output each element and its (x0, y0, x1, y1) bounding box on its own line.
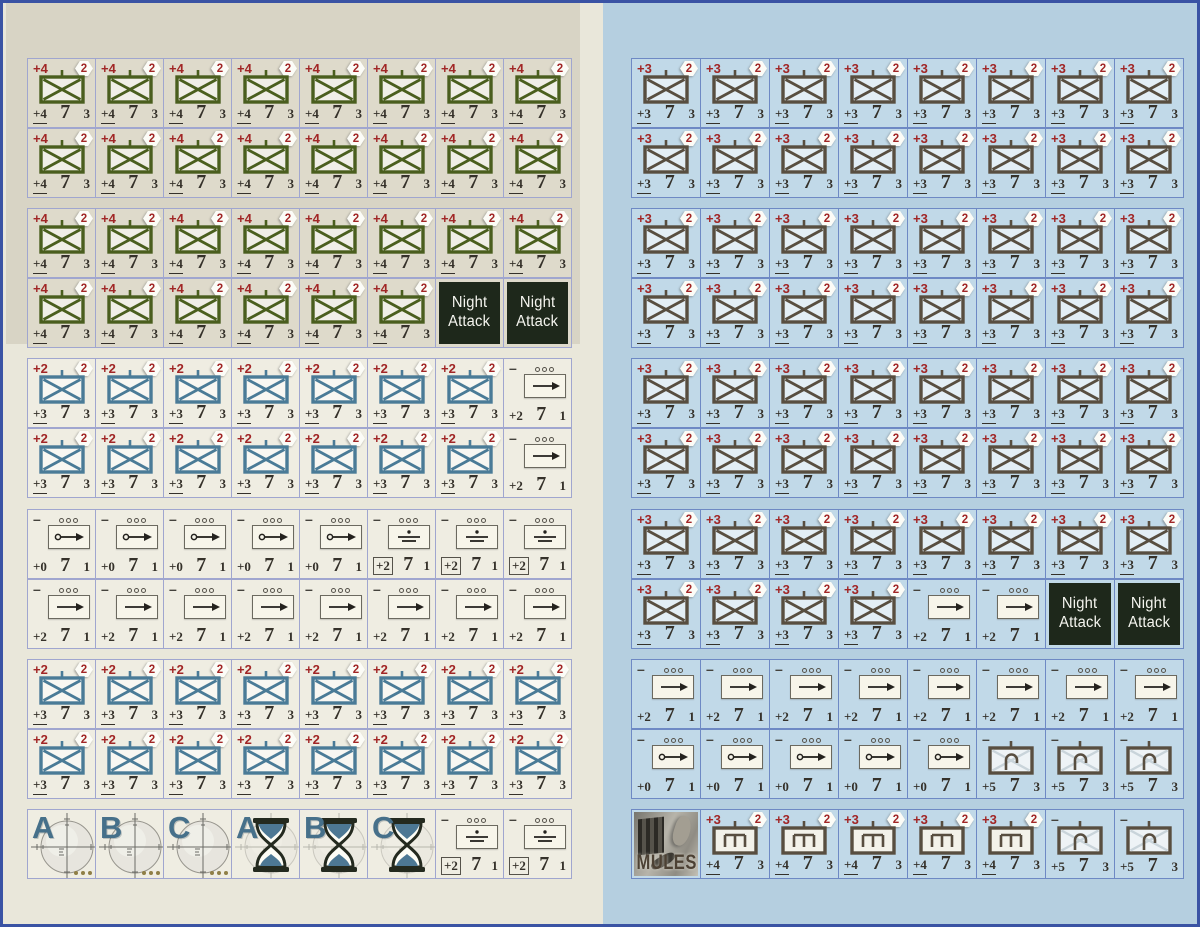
counter-mountain-brown[interactable]: – +5 7 3 (1114, 729, 1184, 799)
counter-values: +3 7 3 (775, 173, 833, 194)
infantry-symbol-icon (310, 139, 358, 175)
infantry-symbol-icon (446, 139, 494, 175)
counter-infantry-blue[interactable]: +2 2 +3 7 3 (27, 428, 96, 498)
counter-supply-column[interactable]: – +2 7 1 (907, 579, 977, 649)
counter-infantry-brown[interactable]: +3 2 +3 7 3 (769, 428, 839, 498)
right-value: 3 (826, 406, 833, 422)
right-value: 1 (287, 629, 294, 645)
counter-machinegun-brown[interactable]: +3 2 +4 7 3 (769, 809, 839, 879)
right-value: 3 (964, 106, 971, 122)
counter-timer-c[interactable]: C (367, 809, 436, 879)
counter-night-attack[interactable]: NightAttack (1114, 579, 1184, 649)
counter-infantry-brown[interactable]: +3 2 +3 7 3 (700, 579, 770, 649)
counter-infantry-green[interactable]: +4 2 +4 7 3 (299, 208, 368, 278)
counter-infantry-blue[interactable]: +2 2 +3 7 3 (95, 659, 164, 729)
center-value: 7 (734, 706, 744, 724)
center-value: 7 (196, 473, 206, 491)
counter-infantry-blue[interactable]: +2 2 +3 7 3 (367, 428, 436, 498)
counter-infantry-green[interactable]: +4 2 +4 7 3 (95, 208, 164, 278)
counter-infantry-green[interactable]: +4 2 +4 7 3 (95, 128, 164, 198)
left-value: +3 (913, 256, 927, 274)
counter-infantry-green[interactable]: +4 2 +4 7 3 (163, 58, 232, 128)
left-value: +4 (101, 176, 115, 194)
counter-supply-dump[interactable]: – +2 7 1 (435, 509, 504, 579)
counter-infantry-brown[interactable]: +3 2 +3 7 3 (631, 509, 701, 579)
counter-values: +4 7 3 (101, 323, 158, 344)
counter-supply-column[interactable]: – +2 7 1 (976, 659, 1046, 729)
counter-wagon-column[interactable]: – +0 7 1 (838, 729, 908, 799)
counter-infantry-blue[interactable]: +2 2 +3 7 3 (435, 659, 504, 729)
counter-infantry-green[interactable]: +4 2 +4 7 3 (27, 58, 96, 128)
column-box (790, 745, 832, 769)
counter-infantry-brown[interactable]: +3 2 +3 7 3 (838, 128, 908, 198)
counter-infantry-brown[interactable]: +3 2 +3 7 3 (631, 208, 701, 278)
counter-supply-dump[interactable]: – +2 7 1 (435, 809, 504, 879)
counter-infantry-brown[interactable]: +3 2 +3 7 3 (907, 58, 977, 128)
counter-infantry-blue[interactable]: +2 2 +3 7 3 (27, 729, 96, 799)
counter-values: +4 7 3 (33, 173, 90, 194)
counter-supply-dump[interactable]: – +2 7 1 (367, 509, 436, 579)
counter-infantry-green[interactable]: +4 2 +4 7 3 (95, 58, 164, 128)
counter-wagon-column[interactable]: – +0 7 1 (231, 509, 300, 579)
counter-infantry-blue[interactable]: +2 2 +3 7 3 (367, 659, 436, 729)
counter-infantry-brown[interactable]: +3 2 +3 7 3 (1045, 208, 1115, 278)
counter-infantry-brown[interactable]: +3 2 +3 7 3 (700, 358, 770, 428)
counter-supply-column[interactable]: – +2 7 1 (769, 659, 839, 729)
counter-mountain-brown[interactable]: – +5 7 3 (1114, 809, 1184, 879)
center-value: 7 (1148, 554, 1158, 572)
counter-infantry-blue[interactable]: +2 2 +3 7 3 (27, 358, 96, 428)
counter-infantry-blue[interactable]: +2 2 +3 7 3 (299, 428, 368, 498)
counter-values: +0 7 1 (237, 556, 294, 575)
counter-infantry-green[interactable]: +4 2 +4 7 3 (27, 128, 96, 198)
counter-supply-column[interactable]: – +2 7 1 (907, 659, 977, 729)
wheels-icon (940, 738, 959, 743)
right-value: 3 (287, 256, 294, 272)
center-value: 7 (1148, 253, 1158, 271)
counter-infantry-green[interactable]: +4 2 +4 7 3 (299, 278, 368, 348)
counter-infantry-brown[interactable]: +3 2 +3 7 3 (838, 208, 908, 278)
counter-infantry-green[interactable]: +4 2 +4 7 3 (163, 208, 232, 278)
right-value: 3 (1102, 256, 1109, 272)
counter-infantry-brown[interactable]: +3 2 +3 7 3 (1114, 428, 1184, 498)
counter-infantry-brown[interactable]: +3 2 +3 7 3 (769, 358, 839, 428)
left-value: +3 (441, 707, 455, 725)
left-value: +2 (844, 709, 858, 725)
counter-wagon-column[interactable]: – +0 7 1 (299, 509, 368, 579)
infantry-symbol-icon (514, 139, 562, 175)
counter-supply-column[interactable]: – +2 7 1 (631, 659, 701, 729)
left-value: +2 (237, 629, 251, 645)
counter-artillery-target-a[interactable]: A (27, 809, 96, 879)
counter-values: +3 7 3 (775, 473, 833, 494)
infantry-symbol-icon (987, 520, 1035, 556)
counter-supply-column[interactable]: – +2 7 1 (231, 579, 300, 649)
counter-infantry-blue[interactable]: +2 2 +3 7 3 (435, 428, 504, 498)
counter-wagon-column[interactable]: – +0 7 1 (95, 509, 164, 579)
column-box (184, 525, 226, 549)
counter-row: +3 2 +3 7 3+3 2 +3 7 3+3 2 +3 7 3+3 2 +3… (631, 428, 1184, 498)
right-value: 3 (688, 557, 695, 573)
counter-infantry-blue[interactable]: +2 2 +3 7 3 (231, 729, 300, 799)
left-value: +3 (913, 326, 927, 344)
right-value: 3 (1171, 557, 1178, 573)
right-value: 1 (1033, 709, 1040, 725)
counter-supply-dump[interactable]: – +2 7 1 (503, 509, 572, 579)
counter-infantry-brown[interactable]: +3 2 +3 7 3 (838, 509, 908, 579)
center-value: 7 (1079, 776, 1089, 794)
center-value: 7 (1079, 103, 1089, 121)
counter-wagon-column[interactable]: – +0 7 1 (700, 729, 770, 799)
counter-infantry-brown[interactable]: +3 2 +3 7 3 (1045, 58, 1115, 128)
right-value: 3 (423, 406, 430, 422)
counter-infantry-blue[interactable]: +2 2 +3 7 3 (95, 428, 164, 498)
counter-supply-column[interactable]: – +2 7 1 (95, 579, 164, 649)
counter-infantry-green[interactable]: +4 2 +4 7 3 (503, 128, 572, 198)
infantry-symbol-icon (642, 590, 690, 626)
infantry-symbol-icon (38, 439, 86, 475)
counter-infantry-blue[interactable]: +2 2 +3 7 3 (231, 358, 300, 428)
wheels-icon (535, 367, 554, 372)
counter-machinegun-brown[interactable]: +3 2 +4 7 3 (907, 809, 977, 879)
left-value: +4 (441, 106, 455, 124)
counter-infantry-blue[interactable]: +2 2 +3 7 3 (435, 729, 504, 799)
right-value: 1 (559, 858, 566, 874)
right-value: 3 (491, 476, 498, 492)
counter-supply-column[interactable]: – +2 7 1 (27, 579, 96, 649)
counter-infantry-green[interactable]: +4 2 +4 7 3 (367, 128, 436, 198)
counter-infantry-brown[interactable]: +3 2 +3 7 3 (907, 278, 977, 348)
counter-infantry-brown[interactable]: +3 2 +3 7 3 (907, 208, 977, 278)
center-value: 7 (332, 323, 342, 341)
center-value: 7 (941, 473, 951, 491)
column-symbol (368, 588, 435, 619)
column-symbol (1046, 668, 1114, 699)
center-value: 7 (128, 626, 138, 644)
counter-infantry-brown[interactable]: +3 2 +3 7 3 (1045, 509, 1115, 579)
counter-infantry-brown[interactable]: +3 2 +3 7 3 (907, 509, 977, 579)
infantry-symbol-icon (446, 740, 494, 776)
counter-infantry-green[interactable]: +4 2 +4 7 3 (299, 128, 368, 198)
counter-infantry-brown[interactable]: +3 2 +3 7 3 (769, 278, 839, 348)
counter-wagon-column[interactable]: – +0 7 1 (163, 509, 232, 579)
counter-values: +3 7 3 (775, 103, 833, 124)
counter-infantry-brown[interactable]: +3 2 +3 7 3 (700, 208, 770, 278)
left-value: +2 (509, 629, 523, 645)
center-value: 7 (803, 776, 813, 794)
counter-night-attack[interactable]: NightAttack (1045, 579, 1115, 649)
counter-infantry-green[interactable]: +4 2 +4 7 3 (231, 278, 300, 348)
counter-infantry-brown[interactable]: +3 2 +3 7 3 (700, 509, 770, 579)
counter-wagon-column[interactable]: – +0 7 1 (769, 729, 839, 799)
left-value: +5 (1051, 779, 1065, 795)
counter-infantry-brown[interactable]: +3 2 +3 7 3 (976, 509, 1046, 579)
left-value: +3 (775, 627, 789, 645)
infantry-symbol-icon (918, 369, 966, 405)
counter-infantry-brown[interactable]: +3 2 +3 7 3 (1045, 278, 1115, 348)
counter-row: +4 2 +4 7 3+4 2 +4 7 3+4 2 +4 7 3+4 2 +4… (27, 208, 572, 278)
counter-infantry-green[interactable]: +4 2 +4 7 3 (231, 58, 300, 128)
counter-supply-column[interactable]: – +2 7 1 (503, 428, 572, 498)
infantry-symbol-icon (711, 369, 759, 405)
counter-infantry-green[interactable]: +4 2 +4 7 3 (367, 58, 436, 128)
counter-infantry-brown[interactable]: +3 2 +3 7 3 (1114, 208, 1184, 278)
counter-values: +3 7 3 (637, 173, 695, 194)
infantry-symbol-icon (987, 289, 1035, 325)
counter-infantry-brown[interactable]: +3 2 +3 7 3 (631, 579, 701, 649)
counter-infantry-green[interactable]: +4 2 +4 7 3 (367, 208, 436, 278)
supply-dump-icon (529, 529, 561, 545)
column-box (524, 525, 566, 549)
column-symbol (232, 588, 299, 619)
counter-infantry-green[interactable]: +4 2 +4 7 3 (163, 278, 232, 348)
night-attack-label: NightAttack (1118, 583, 1180, 645)
counter-infantry-green[interactable]: +4 2 +4 7 3 (435, 208, 504, 278)
center-value: 7 (1010, 173, 1020, 191)
counter-infantry-green[interactable]: +4 2 +4 7 3 (503, 208, 572, 278)
counter-wagon-column[interactable]: – +0 7 1 (27, 509, 96, 579)
center-value: 7 (60, 556, 70, 574)
center-value: 7 (196, 253, 206, 271)
counter-infantry-brown[interactable]: +3 2 +3 7 3 (838, 278, 908, 348)
column-symbol (701, 668, 769, 699)
counter-machinegun-brown[interactable]: +3 2 +4 7 3 (976, 809, 1046, 879)
counter-infantry-green[interactable]: +4 2 +4 7 3 (231, 128, 300, 198)
center-value: 7 (128, 556, 138, 574)
counter-row: +2 2 +3 7 3+2 2 +3 7 3+2 2 +3 7 3+2 2 +3… (27, 659, 572, 729)
counter-infantry-brown[interactable]: +3 2 +3 7 3 (769, 128, 839, 198)
right-value: 3 (688, 627, 695, 643)
counter-infantry-brown[interactable]: +3 2 +3 7 3 (700, 58, 770, 128)
column-symbol (164, 588, 231, 619)
counter-infantry-brown[interactable]: +3 2 +3 7 3 (976, 208, 1046, 278)
wheels-icon (59, 588, 78, 593)
right-value: 3 (757, 557, 764, 573)
counter-mountain-brown[interactable]: – +5 7 3 (976, 729, 1046, 799)
counter-infantry-green[interactable]: +4 2 +4 7 3 (299, 58, 368, 128)
counter-infantry-green[interactable]: +4 2 +4 7 3 (27, 208, 96, 278)
counter-infantry-green[interactable]: +4 2 +4 7 3 (231, 208, 300, 278)
counter-infantry-brown[interactable]: +3 2 +3 7 3 (1114, 128, 1184, 198)
counter-mules[interactable]: MULES (631, 809, 701, 879)
counter-infantry-brown[interactable]: +3 2 +3 7 3 (769, 579, 839, 649)
counter-infantry-green[interactable]: +4 2 +4 7 3 (27, 278, 96, 348)
counter-infantry-brown[interactable]: +3 2 +3 7 3 (700, 128, 770, 198)
counter-supply-column[interactable]: – +2 7 1 (1045, 659, 1115, 729)
right-value: 3 (423, 476, 430, 492)
counter-infantry-blue[interactable]: +2 2 +3 7 3 (299, 729, 368, 799)
column-box (721, 745, 763, 769)
counter-supply-column[interactable]: – +2 7 1 (700, 659, 770, 729)
counter-infantry-brown[interactable]: +3 2 +3 7 3 (976, 128, 1046, 198)
center-value: 7 (468, 774, 478, 792)
counter-supply-column[interactable]: – +2 7 1 (299, 579, 368, 649)
counter-infantry-brown[interactable]: +3 2 +3 7 3 (976, 358, 1046, 428)
counter-infantry-blue[interactable]: +2 2 +3 7 3 (503, 659, 572, 729)
counter-infantry-green[interactable]: +4 2 +4 7 3 (163, 128, 232, 198)
counter-supply-column[interactable]: – +2 7 1 (976, 579, 1046, 649)
center-value: 7 (1148, 473, 1158, 491)
wagon-arrow-icon (864, 750, 896, 764)
counter-supply-column[interactable]: – +2 7 1 (1114, 659, 1184, 729)
counter-infantry-green[interactable]: +4 2 +4 7 3 (435, 128, 504, 198)
counter-supply-column[interactable]: – +2 7 1 (503, 358, 572, 428)
counter-infantry-brown[interactable]: +3 2 +3 7 3 (976, 278, 1046, 348)
counter-infantry-brown[interactable]: +3 2 +3 7 3 (1114, 358, 1184, 428)
counter-supply-column[interactable]: – +2 7 1 (367, 579, 436, 649)
left-value: +3 (913, 557, 927, 575)
counter-infantry-brown[interactable]: +3 2 +3 7 3 (700, 428, 770, 498)
counter-supply-column[interactable]: – +2 7 1 (163, 579, 232, 649)
center-value: 7 (665, 473, 675, 491)
counter-infantry-green[interactable]: +4 2 +4 7 3 (503, 58, 572, 128)
counter-infantry-brown[interactable]: +3 2 +3 7 3 (1114, 58, 1184, 128)
infantry-symbol-icon (780, 69, 828, 105)
left-value: +2 (706, 709, 720, 725)
counter-infantry-brown[interactable]: +3 2 +3 7 3 (838, 58, 908, 128)
counter-infantry-blue[interactable]: +2 2 +3 7 3 (27, 659, 96, 729)
left-value: +3 (1120, 406, 1134, 424)
center-value: 7 (468, 704, 478, 722)
right-value: 3 (151, 476, 158, 492)
right-value: 3 (83, 106, 90, 122)
counter-infantry-blue[interactable]: +2 2 +3 7 3 (299, 659, 368, 729)
counter-timer-a[interactable]: A (231, 809, 300, 879)
counter-infantry-brown[interactable]: +3 2 +3 7 3 (1045, 428, 1115, 498)
right-value: 3 (964, 476, 971, 492)
counter-wagon-column[interactable]: – +0 7 1 (631, 729, 701, 799)
column-symbol (839, 738, 907, 769)
counter-infantry-brown[interactable]: +3 2 +3 7 3 (769, 509, 839, 579)
counter-infantry-green[interactable]: +4 2 +4 7 3 (435, 58, 504, 128)
right-value: 3 (559, 777, 566, 793)
counter-infantry-brown[interactable]: +3 2 +3 7 3 (838, 428, 908, 498)
counter-infantry-brown[interactable]: +3 2 +3 7 3 (1114, 278, 1184, 348)
counter-row: +2 2 +3 7 3+2 2 +3 7 3+2 2 +3 7 3+2 2 +3… (27, 358, 572, 428)
counter-infantry-brown[interactable]: +3 2 +3 7 3 (631, 128, 701, 198)
counter-infantry-blue[interactable]: +2 2 +3 7 3 (299, 358, 368, 428)
counter-row: +4 2 +4 7 3+4 2 +4 7 3+4 2 +4 7 3+4 2 +4… (27, 58, 572, 128)
counter-infantry-brown[interactable]: +3 2 +3 7 3 (1045, 358, 1115, 428)
center-value: 7 (128, 774, 138, 792)
left-value: +3 (844, 406, 858, 424)
counter-supply-column[interactable]: – +2 7 1 (838, 659, 908, 729)
counter-infantry-brown[interactable]: +3 2 +3 7 3 (907, 428, 977, 498)
counter-infantry-blue[interactable]: +2 2 +3 7 3 (95, 358, 164, 428)
counter-infantry-brown[interactable]: +3 2 +3 7 3 (1045, 128, 1115, 198)
right-value: 1 (895, 779, 902, 795)
counter-infantry-blue[interactable]: +2 2 +3 7 3 (231, 659, 300, 729)
counter-infantry-brown[interactable]: +3 2 +3 7 3 (769, 208, 839, 278)
counter-wagon-column[interactable]: – +0 7 1 (907, 729, 977, 799)
counter-infantry-brown[interactable]: +3 2 +3 7 3 (700, 278, 770, 348)
counter-infantry-green[interactable]: +4 2 +4 7 3 (367, 278, 436, 348)
counter-infantry-blue[interactable]: +2 2 +3 7 3 (231, 428, 300, 498)
counter-values: +4 7 3 (237, 103, 294, 124)
counter-infantry-blue[interactable]: +2 2 +3 7 3 (163, 358, 232, 428)
pack-gun-symbol-icon (987, 820, 1035, 856)
counter-supply-column[interactable]: – +2 7 1 (503, 579, 572, 649)
counter-mountain-brown[interactable]: – +5 7 3 (1045, 729, 1115, 799)
right-value: 3 (1033, 857, 1040, 873)
counter-infantry-brown[interactable]: +3 2 +3 7 3 (976, 58, 1046, 128)
counter-machinegun-brown[interactable]: +3 2 +4 7 3 (700, 809, 770, 879)
column-symbol (504, 367, 571, 398)
counter-infantry-brown[interactable]: +3 2 +3 7 3 (1114, 509, 1184, 579)
wheels-icon (535, 437, 554, 442)
counter-values: +2 7 1 (101, 626, 158, 645)
center-value: 7 (734, 776, 744, 794)
center-value: 7 (403, 555, 413, 573)
center-value: 7 (400, 626, 410, 644)
counter-infantry-green[interactable]: +4 2 +4 7 3 (95, 278, 164, 348)
wheels-icon (1009, 668, 1028, 673)
counter-supply-column[interactable]: – +2 7 1 (435, 579, 504, 649)
infantry-symbol-icon (378, 740, 426, 776)
counter-mountain-brown[interactable]: – +5 7 3 (1045, 809, 1115, 879)
infantry-symbol-icon (1056, 369, 1104, 405)
wheels-icon (195, 588, 214, 593)
counter-infantry-blue[interactable]: +2 2 +3 7 3 (503, 729, 572, 799)
right-value: 3 (895, 406, 902, 422)
counter-values: +3 7 3 (706, 624, 764, 645)
counter-artillery-target-b[interactable]: B (95, 809, 164, 879)
counter-machinegun-brown[interactable]: +3 2 +4 7 3 (838, 809, 908, 879)
center-value: 7 (332, 403, 342, 421)
counter-infantry-brown[interactable]: +3 2 +3 7 3 (631, 278, 701, 348)
counter-supply-dump[interactable]: – +2 7 1 (503, 809, 572, 879)
counter-infantry-blue[interactable]: +2 2 +3 7 3 (95, 729, 164, 799)
counter-artillery-target-c[interactable]: C (163, 809, 232, 879)
infantry-symbol-icon (711, 139, 759, 175)
counter-infantry-brown[interactable]: +3 2 +3 7 3 (769, 58, 839, 128)
counter-infantry-brown[interactable]: +3 2 +3 7 3 (631, 428, 701, 498)
counter-infantry-brown[interactable]: +3 2 +3 7 3 (838, 358, 908, 428)
right-value: 3 (1033, 779, 1040, 795)
counter-infantry-brown[interactable]: +3 2 +3 7 3 (907, 128, 977, 198)
left-value: +3 (101, 777, 115, 795)
counter-infantry-blue[interactable]: +2 2 +3 7 3 (163, 729, 232, 799)
left-value: +3 (982, 476, 996, 494)
left-value: +4 (169, 326, 183, 344)
left-value: +2 (913, 629, 927, 645)
counter-night-attack[interactable]: NightAttack (503, 278, 572, 348)
counter-infantry-brown[interactable]: +3 2 +3 7 3 (631, 358, 701, 428)
counter-infantry-blue[interactable]: +2 2 +3 7 3 (163, 428, 232, 498)
center-value: 7 (734, 554, 744, 572)
counter-infantry-blue[interactable]: +2 2 +3 7 3 (367, 358, 436, 428)
infantry-symbol-icon (106, 439, 154, 475)
left-value: +3 (101, 476, 115, 494)
counter-values: +3 7 3 (913, 473, 971, 494)
counter-infantry-brown[interactable]: +3 2 +3 7 3 (838, 579, 908, 649)
counter-night-attack[interactable]: NightAttack (435, 278, 504, 348)
counter-infantry-brown[interactable]: +3 2 +3 7 3 (907, 358, 977, 428)
counter-infantry-brown[interactable]: +3 2 +3 7 3 (631, 58, 701, 128)
counter-infantry-brown[interactable]: +3 2 +3 7 3 (976, 428, 1046, 498)
counter-infantry-blue[interactable]: +2 2 +3 7 3 (435, 358, 504, 428)
infantry-symbol-icon (242, 740, 290, 776)
counter-infantry-blue[interactable]: +2 2 +3 7 3 (367, 729, 436, 799)
right-value: 3 (287, 777, 294, 793)
center-value: 7 (196, 103, 206, 121)
counter-row: – +2 7 1– +2 7 1– +2 7 1– +2 7 1– +2 7 1… (631, 659, 1184, 729)
counter-infantry-blue[interactable]: +2 2 +3 7 3 (163, 659, 232, 729)
counter-values: +2 7 1 (509, 405, 566, 424)
counter-timer-b[interactable]: B (299, 809, 368, 879)
counter-row: +4 2 +4 7 3+4 2 +4 7 3+4 2 +4 7 3+4 2 +4… (27, 128, 572, 198)
left-value: +3 (706, 627, 720, 645)
